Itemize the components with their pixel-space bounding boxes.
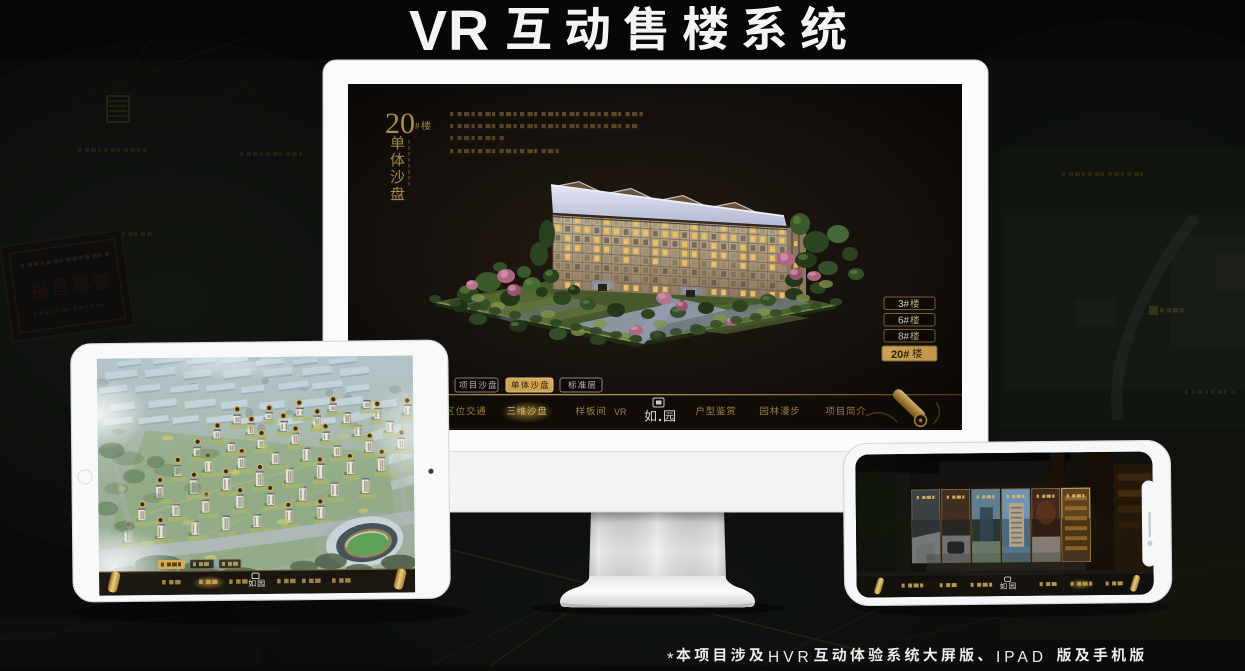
svg-text:VR: VR (409, 0, 490, 60)
svg-text:HVR: HVR (768, 649, 813, 666)
svg-text:*: * (667, 649, 674, 668)
svg-text:IPAD: IPAD (996, 649, 1047, 666)
